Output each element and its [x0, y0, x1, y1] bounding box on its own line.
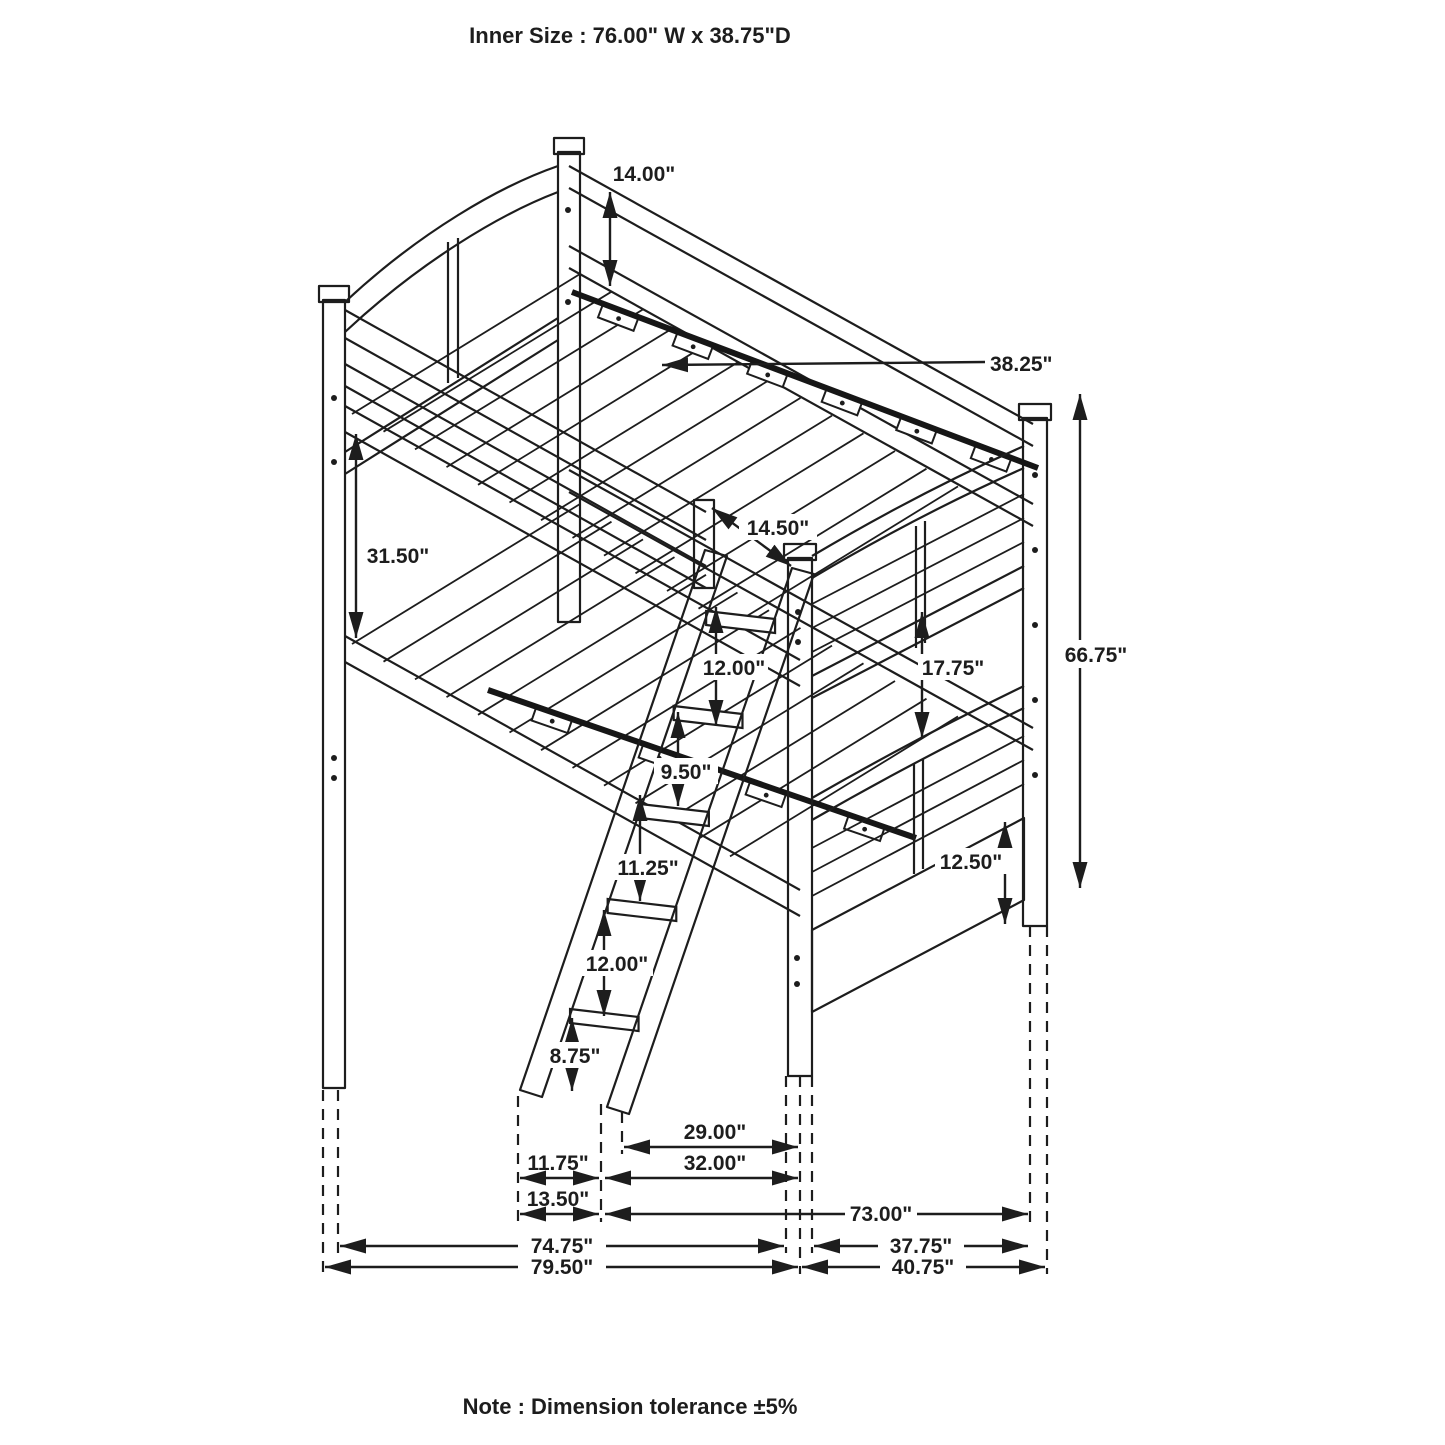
dim-label: 29.00" [684, 1121, 747, 1144]
dim-label: 14.50" [747, 517, 810, 540]
dim-label: 12.00" [586, 953, 649, 976]
dim-overall-length: 79.50" [325, 1256, 798, 1279]
dim-footboard-rail: 12.50" [935, 822, 1007, 924]
projection-lines [323, 926, 1047, 1274]
dim-depth-inner: 37.75" [814, 1235, 1028, 1258]
dim-headboard-top: 14.00" [610, 163, 675, 286]
dim-overall-height: 66.75" [1057, 394, 1135, 888]
dim-label: 66.75" [1065, 644, 1128, 667]
dim-label: 73.00" [850, 1203, 913, 1226]
left-front-post [319, 286, 349, 1088]
dim-rung-spacing-3: 12.00" [581, 910, 653, 1016]
dim-label: 11.75" [527, 1152, 588, 1175]
dim-ladder-reach: 29.00" [624, 1121, 798, 1147]
dim-label: 38.25" [990, 353, 1053, 376]
dim-label: 17.75" [922, 657, 985, 680]
dim-label: 9.50" [661, 761, 712, 784]
dim-label: 11.25" [617, 857, 678, 880]
dim-overall-depth: 40.75" [802, 1256, 1045, 1279]
dim-frame-length: 73.00" [605, 1203, 1028, 1226]
dim-label: 12.00" [703, 657, 766, 680]
dim-label: 12.50" [940, 851, 1003, 874]
dim-ladder-reach-outer: 32.00" [605, 1152, 798, 1178]
dim-label: 40.75" [892, 1256, 955, 1279]
dim-ladder-foot-outer: 13.50" [520, 1188, 599, 1214]
dim-label: 14.00" [613, 163, 676, 186]
bottom-dimension-rows: 29.00" 11.75" 32.00" 13.50" 73.00" 74.75… [325, 1121, 1045, 1279]
upper-bunk-slats [352, 274, 958, 626]
screw-marks [331, 207, 1038, 987]
tolerance-note: Note : Dimension tolerance ±5% [463, 1394, 798, 1419]
dim-length-inner: 74.75" [340, 1235, 784, 1258]
page-title: Inner Size : 76.00" W x 38.75"D [469, 23, 791, 48]
dim-label: 79.50" [531, 1256, 594, 1279]
dim-label: 13.50" [527, 1188, 590, 1211]
dim-rung-floor-gap: 8.75" [543, 1018, 607, 1091]
dim-label: 37.75" [890, 1235, 953, 1258]
bunk-bed-dimension-drawing: Inner Size : 76.00" W x 38.75"D [0, 0, 1445, 1445]
bed-structure [319, 138, 1051, 1114]
dim-label: 31.50" [367, 545, 430, 568]
dim-label: 74.75" [531, 1235, 594, 1258]
dimension-diagram-page: Inner Size : 76.00" W x 38.75"D [0, 0, 1445, 1445]
lower-bunk-slats [352, 504, 958, 856]
dim-label: 8.75" [550, 1045, 601, 1068]
dim-label: 32.00" [684, 1152, 747, 1175]
dim-ladder-foot-width: 11.75" [520, 1152, 599, 1178]
dim-bunk-clearance: 31.50" [356, 434, 434, 638]
dim-rung-spacing-1: 9.50" [654, 712, 718, 806]
